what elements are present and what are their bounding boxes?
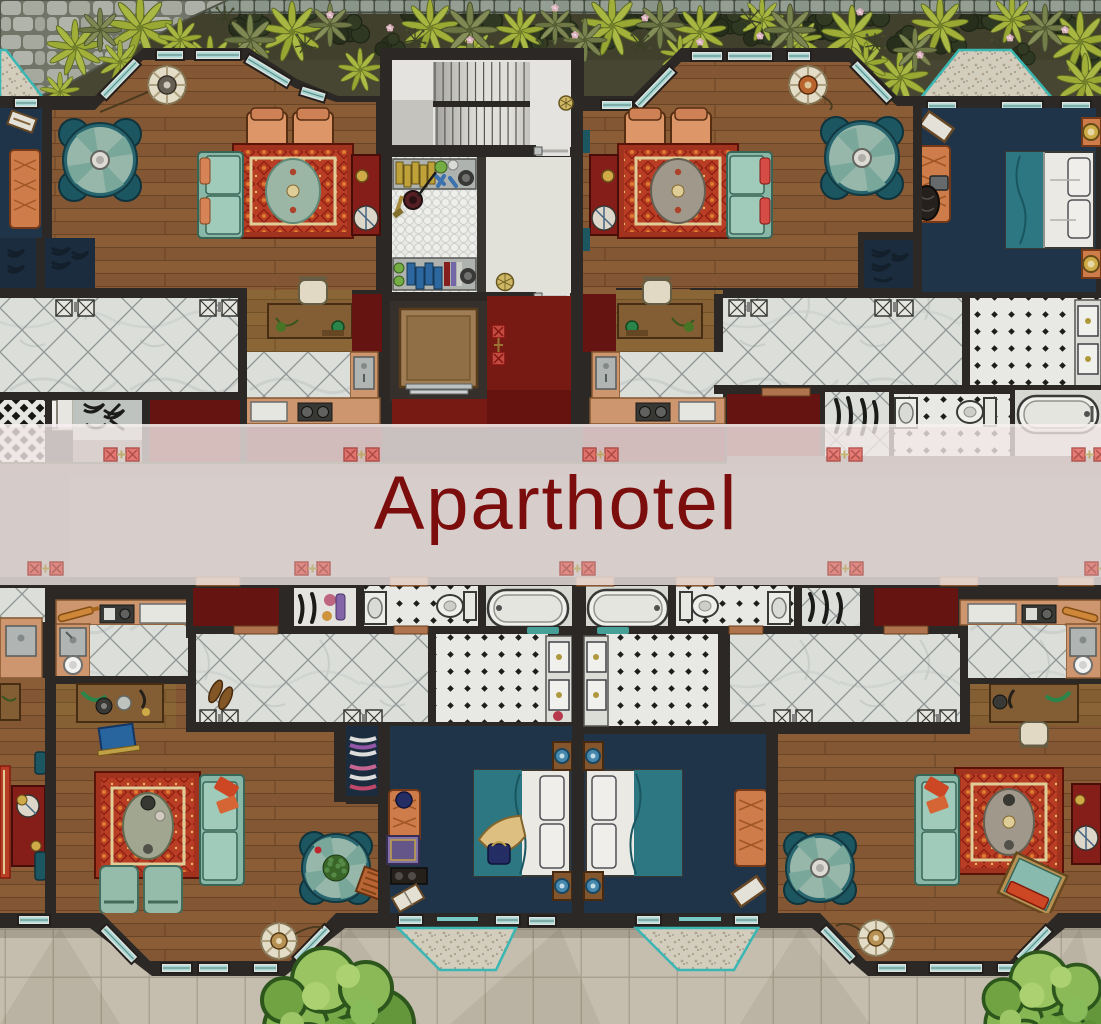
svg-text:Aparthotel: Aparthotel <box>374 461 738 546</box>
